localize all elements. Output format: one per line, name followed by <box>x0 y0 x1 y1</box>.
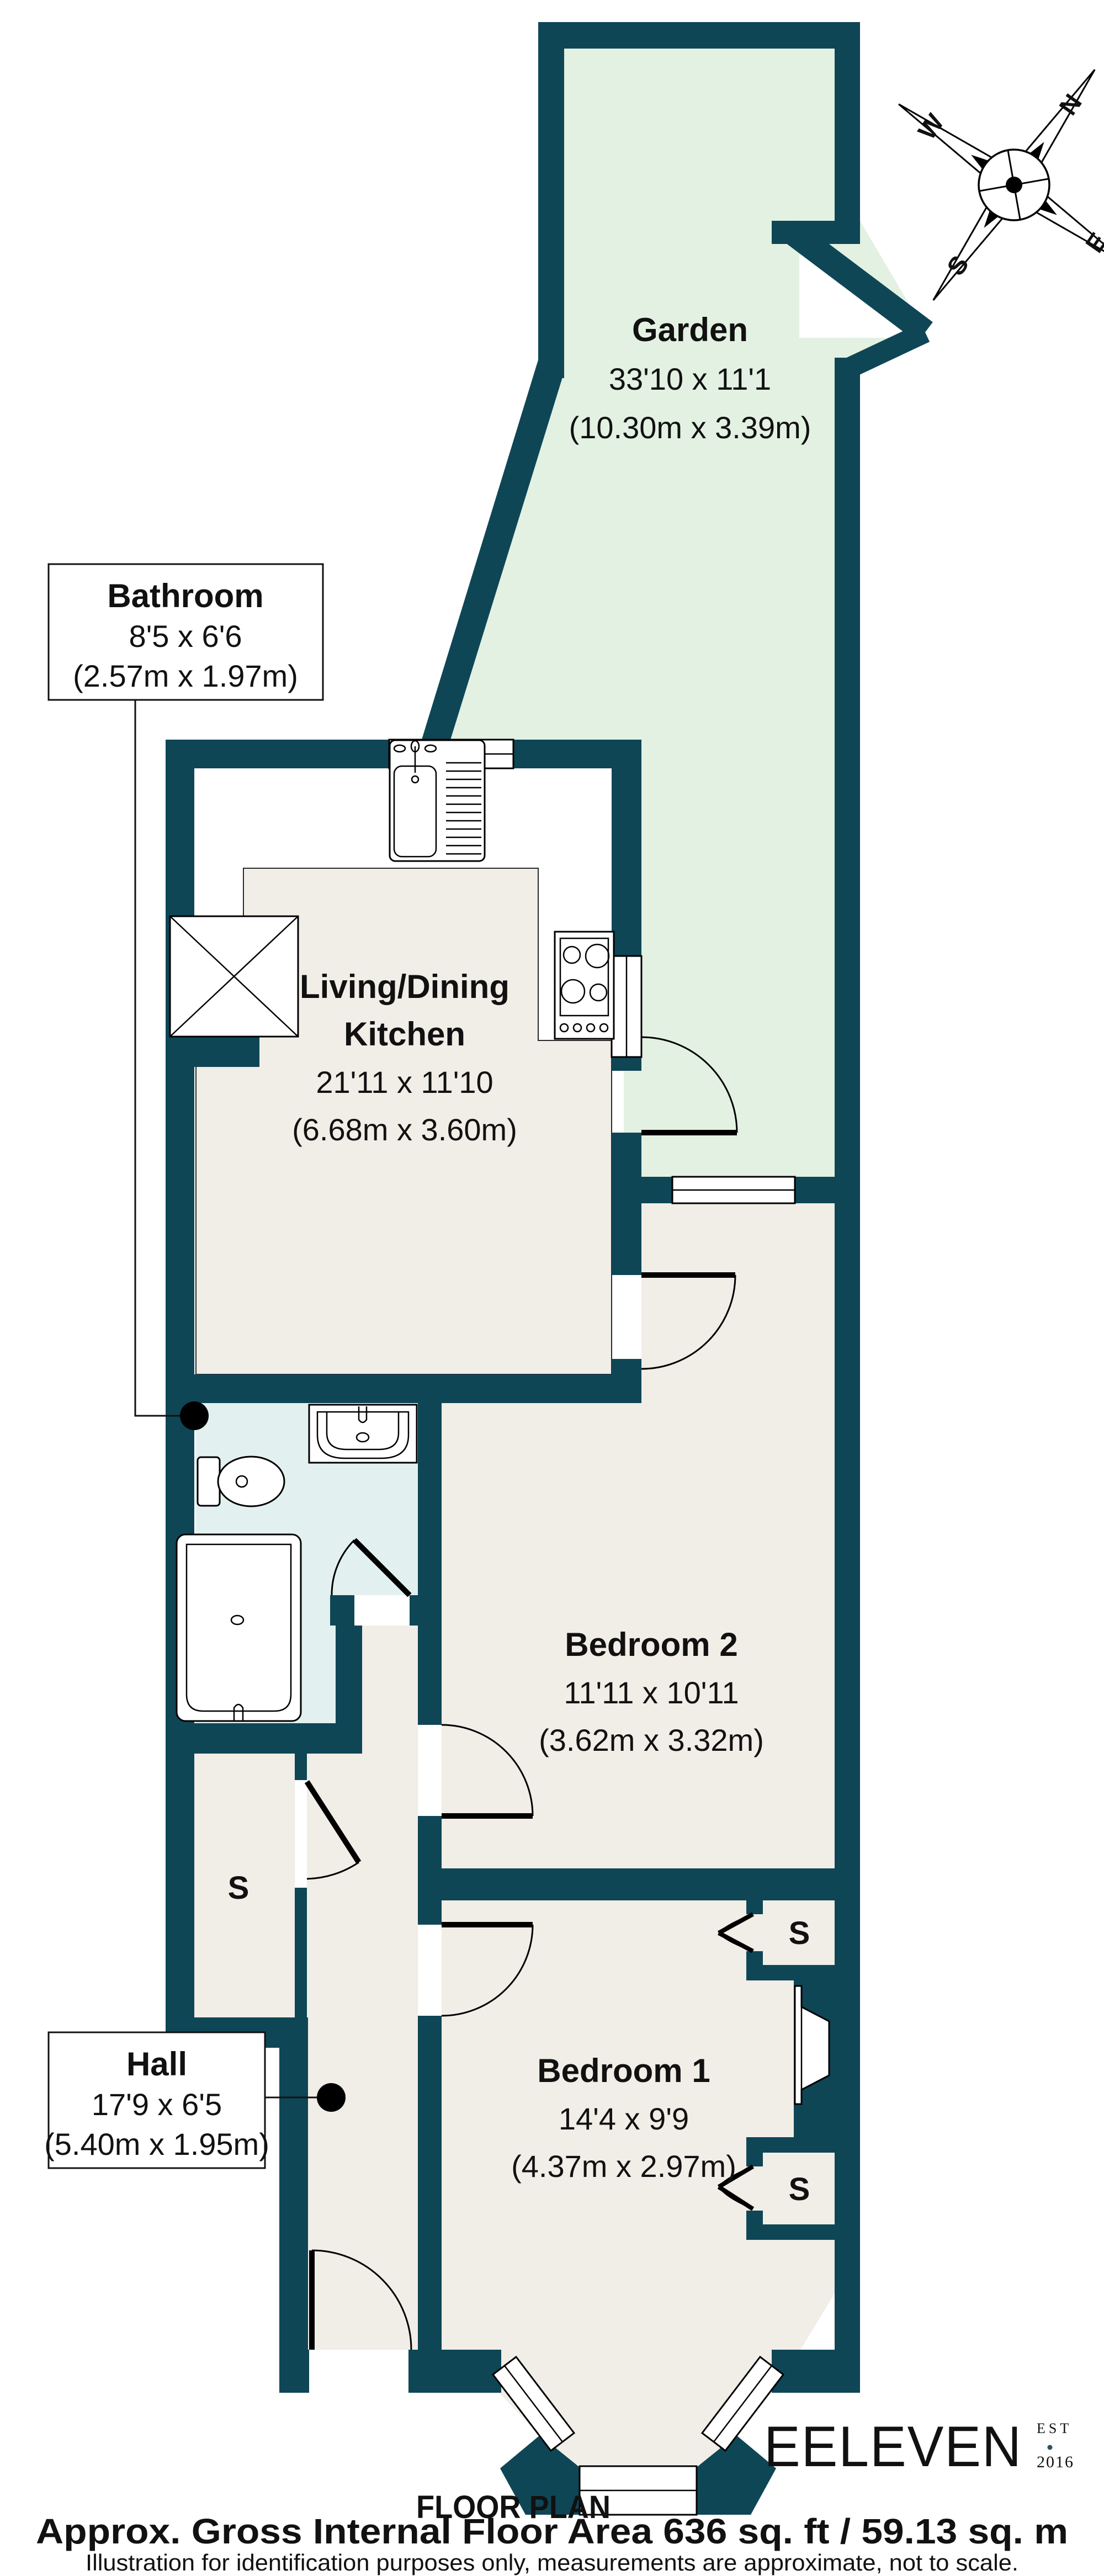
bedroom2-dims-imperial: 11'11 x 10'11 <box>564 1675 739 1710</box>
garden-dims-imperial: 33'10 x 11'1 <box>609 362 771 396</box>
garden-label: Garden <box>632 311 748 348</box>
hall-leader-dot <box>317 2083 346 2112</box>
living-label-line2: Kitchen <box>344 1016 465 1053</box>
bedroom2-label: Bedroom 2 <box>565 1626 737 1663</box>
hall-dims-imperial: 17'9 x 6'5 <box>92 2087 222 2122</box>
bedroom1-dims-imperial: 14'4 x 9'9 <box>559 2101 689 2136</box>
toilet-icon <box>198 1457 284 1506</box>
footer-area-text: Approx. Gross Internal Floor Area 636 sq… <box>36 2511 1068 2551</box>
garden-dims-metric: (10.30m x 3.39m) <box>569 410 811 445</box>
bedroom1-dims-metric: (4.37m x 2.97m) <box>511 2149 736 2184</box>
logo-wordmark: EELEVEN <box>764 2415 1022 2479</box>
bedroom2-garden-window-icon <box>672 1177 795 1203</box>
appliance-icon <box>170 916 298 1037</box>
eeleven-logo: EELEVEN EST 2016 <box>764 2415 1074 2479</box>
basin-icon <box>309 1405 417 1463</box>
living-dims-imperial: 21'11 x 11'10 <box>316 1065 493 1100</box>
logo-est: EST <box>1037 2420 1072 2436</box>
hall-dims-metric: (5.40m x 1.95m) <box>44 2127 269 2161</box>
hall-label: Hall <box>126 2046 187 2083</box>
living-dims-metric: (6.68m x 3.60m) <box>292 1112 517 1147</box>
bathroom-dims-metric: (2.57m x 1.97m) <box>73 658 298 693</box>
storage-label-closet1: S <box>789 1915 810 1951</box>
rear-lobby-floor <box>641 1203 835 1403</box>
footer-disclaimer-text: Illustration for identification purposes… <box>86 2550 1018 2575</box>
kitchen-sink-icon <box>390 740 485 861</box>
bathroom-dims-imperial: 8'5 x 6'6 <box>129 619 242 654</box>
bathroom-label: Bathroom <box>107 577 263 614</box>
bathroom-leader-dot <box>180 1401 209 1430</box>
storage-label-closet2: S <box>789 2171 810 2207</box>
bedroom2-dims-metric: (3.62m x 3.32m) <box>539 1723 764 1757</box>
logo-year: 2016 <box>1037 2453 1074 2471</box>
floor-plan-page: Bathroom 8'5 x 6'6 (2.57m x 1.97m) Hall … <box>0 0 1104 2576</box>
living-garden-window-icon <box>612 956 641 1057</box>
living-label-line1: Living/Dining <box>300 968 509 1005</box>
bedroom1-label: Bedroom 1 <box>537 2052 710 2089</box>
bathtub-icon <box>177 1534 301 1721</box>
hob-icon <box>555 932 614 1039</box>
storage-label-hall: S <box>228 1870 250 1906</box>
